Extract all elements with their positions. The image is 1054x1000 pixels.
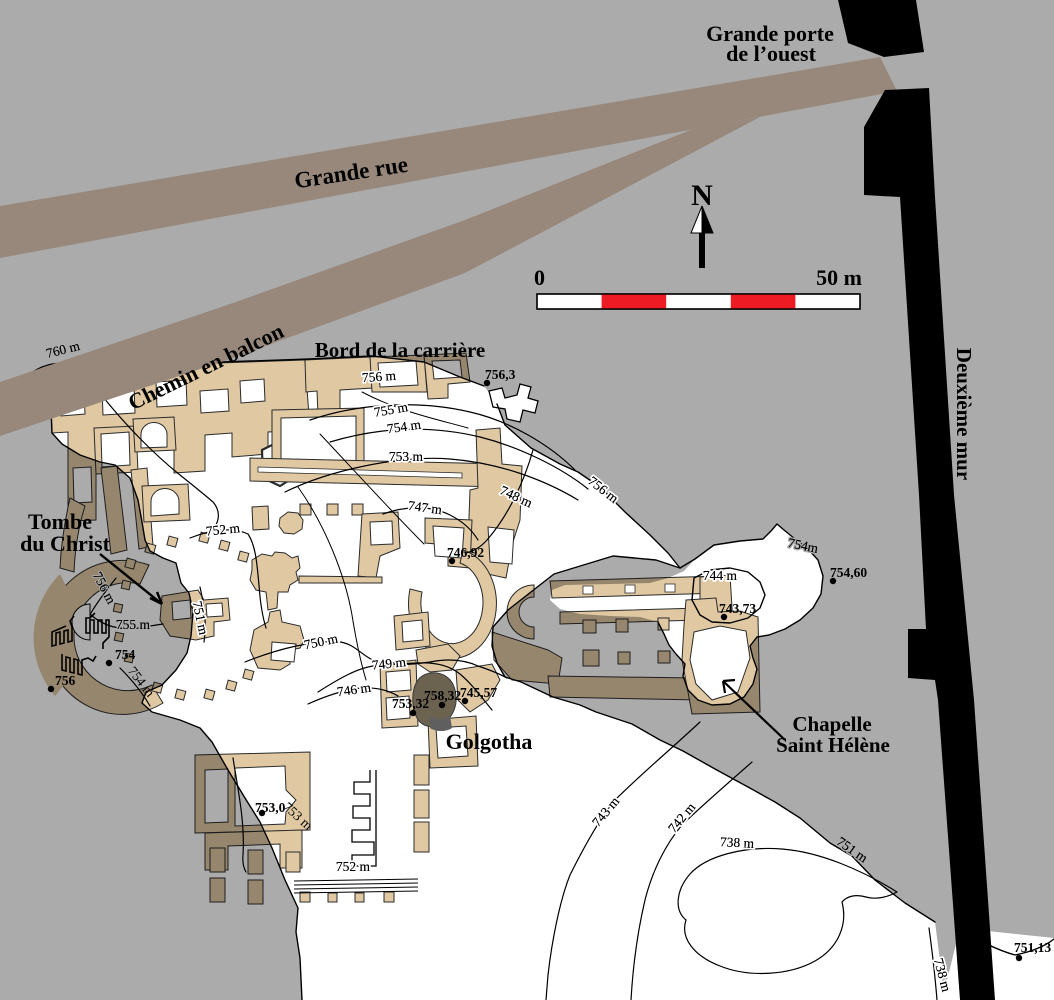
svg-text:753 m: 753 m	[389, 449, 424, 464]
svg-text:745,57: 745,57	[460, 685, 497, 700]
svg-text:758,32: 758,32	[424, 688, 461, 703]
svg-text:756 m: 756 m	[361, 368, 397, 385]
svg-text:752 m: 752 m	[336, 859, 371, 874]
svg-text:Golgotha: Golgotha	[446, 729, 533, 754]
svg-text:Deuxième mur: Deuxième mur	[952, 348, 976, 480]
svg-text:50 m: 50 m	[816, 265, 862, 290]
svg-text:de l’ouest: de l’ouest	[726, 41, 817, 66]
svg-text:Bord de la carrière: Bord de la carrière	[315, 338, 485, 362]
svg-text:754: 754	[115, 647, 136, 662]
svg-text:744 m: 744 m	[703, 568, 738, 583]
svg-text:746,92: 746,92	[447, 545, 484, 560]
svg-text:du Christ: du Christ	[20, 531, 111, 556]
svg-text:738 m: 738 m	[720, 834, 755, 851]
svg-text:754,60: 754,60	[830, 565, 867, 580]
svg-text:0: 0	[534, 265, 545, 290]
svg-text:753,0: 753,0	[255, 800, 286, 815]
svg-text:743,73: 743,73	[719, 601, 756, 616]
svg-text:756: 756	[55, 673, 76, 688]
svg-text:756,3: 756,3	[485, 367, 516, 382]
svg-text:751,13: 751,13	[1014, 940, 1051, 955]
svg-text:Saint Hélène: Saint Hélène	[776, 733, 890, 757]
svg-text:755 m: 755 m	[116, 617, 151, 632]
